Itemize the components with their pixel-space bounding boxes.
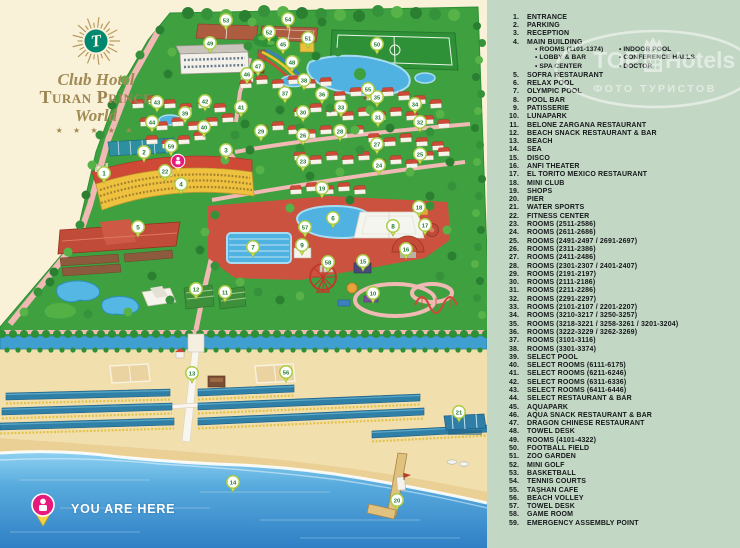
legend-item-label: WATER SPORTS (527, 204, 584, 211)
svg-text:26: 26 (300, 133, 307, 139)
svg-text:22: 22 (162, 169, 168, 175)
legend-item-number: 57. (487, 503, 519, 510)
legend-item-23: 23.ROOMS (2511-2586) (487, 220, 740, 228)
legend-item-number: 32. (487, 296, 519, 303)
legend-item-number: 14. (487, 146, 519, 153)
legend-item-47: 47.DRAGON CHINESE RESTAURANT (487, 420, 740, 428)
tree (473, 22, 481, 30)
tree (436, 110, 445, 119)
tree (477, 90, 485, 98)
tree (436, 272, 445, 281)
you-are-here-pin-icon (24, 488, 62, 528)
legend-item-label: OLYMPIC POOL (527, 88, 582, 95)
legend-item-number: 22. (487, 213, 519, 220)
svg-text:30: 30 (300, 110, 306, 116)
svg-text:52: 52 (266, 30, 272, 36)
svg-text:3: 3 (224, 147, 228, 154)
legend-item-number: 6. (487, 80, 519, 87)
villa-building (255, 75, 268, 84)
tree (443, 226, 452, 235)
legend-item-number: 19. (487, 188, 519, 195)
legend-item-number: 36. (487, 329, 519, 336)
tree (448, 182, 457, 191)
legend-item-label: PATISSERIE (527, 105, 569, 112)
svg-text:15: 15 (360, 259, 367, 265)
tree (82, 191, 91, 200)
svg-text:50: 50 (374, 42, 380, 48)
legend-item-label: SELECT POOL (527, 354, 578, 361)
svg-text:56: 56 (283, 370, 290, 376)
svg-text:1: 1 (102, 170, 106, 177)
legend-item-9: 9.PATISSERIE (487, 104, 740, 112)
tree (88, 161, 97, 170)
legend-item-11: 11.BELONE ZARGANA RESTAURANT (487, 121, 740, 129)
villa-building (383, 137, 396, 146)
villa-building (437, 147, 450, 156)
legend-item-label: EMERGENCY ASSEMBLY POINT (527, 520, 639, 527)
legend-item-label: PARKING (527, 22, 560, 29)
tree (346, 196, 355, 205)
legend-item-number: 13. (487, 138, 519, 145)
legend-sub-item: • SPA CENTER (535, 63, 619, 71)
tree (166, 296, 175, 305)
legend-item-10: 10.LUNAPARK (487, 113, 740, 121)
legend-item-label: LUNAPARK (527, 113, 567, 120)
legend-item-45: 45.AQUAPARK (487, 403, 740, 411)
tree (391, 6, 403, 18)
svg-text:35: 35 (374, 95, 381, 101)
svg-text:51: 51 (305, 36, 312, 42)
legend-item-58: 58.GAME ROOM (487, 511, 740, 519)
legend-item-label: POOL BAR (527, 97, 565, 104)
legend-item-number: 7. (487, 88, 519, 95)
legend-item-label: MAIN BUILDING (527, 39, 583, 46)
legend-item-label: ROOMS (2301-2307 / 2401-2407) (527, 263, 637, 270)
legend-item-35: 35.ROOMS (3218-3221 / 3258-3261 / 3201-3… (487, 320, 740, 328)
villa-building (341, 155, 354, 164)
legend-item-number: 28. (487, 263, 519, 270)
tree (475, 192, 483, 200)
svg-text:25: 25 (417, 152, 424, 158)
legend-item-7: 7.OLYMPIC POOL (487, 88, 740, 96)
legend-item-label: ROOMS (2491-2497 / 2691-2697) (527, 238, 637, 245)
legend-item-48: 48.TOWEL DESK (487, 428, 740, 436)
legend-item-number: 51. (487, 453, 519, 460)
legend-panel: 1.ENTRANCE2.PARKING3.RECEPTION4.MAIN BUI… (487, 0, 740, 548)
legend-item-label: PIER (527, 196, 544, 203)
svg-text:53: 53 (223, 18, 230, 24)
villa-building (221, 113, 234, 122)
tree (164, 70, 173, 79)
svg-text:33: 33 (338, 105, 345, 111)
tree (356, 146, 365, 155)
legend-item-21: 21.WATER SPORTS (487, 204, 740, 212)
villa-building (309, 103, 322, 112)
legend-item-label: DRAGON CHINESE RESTAURANT (527, 420, 645, 427)
legend-item-44: 44.SELECT RESTAURANT & BAR (487, 395, 740, 403)
legend-item-label: ROOMS (2611-2686) (527, 229, 596, 236)
legend-item-number: 34. (487, 312, 519, 319)
legend-item-40: 40.SELECT ROOMS (6111-6175) (487, 361, 740, 369)
tree (201, 8, 213, 20)
logo-club-hotel: Club Hotel (28, 71, 164, 88)
sun-logo-icon: T (54, 12, 138, 70)
svg-text:8: 8 (391, 223, 395, 230)
tree (478, 311, 486, 319)
legend-item-label: ROOMS (4101-4322) (527, 437, 596, 444)
legend-item-39: 39.SELECT POOL (487, 353, 740, 361)
tree (246, 146, 255, 155)
svg-text:17: 17 (422, 223, 428, 229)
svg-text:16: 16 (403, 247, 410, 253)
svg-text:9: 9 (300, 242, 304, 249)
svg-text:23: 23 (300, 159, 307, 165)
legend-item-label: MINI CLUB (527, 180, 565, 187)
legend-item-label: SELECT ROOMS (6211-6246) (527, 370, 626, 377)
villa-building (399, 133, 412, 142)
tree (241, 120, 250, 129)
legend-item-number: 29. (487, 271, 519, 278)
logo-turan-prince: Turan Prince (28, 88, 164, 107)
legend-item-number: 26. (487, 246, 519, 253)
legend-item-54: 54.TENNIS COURTS (487, 478, 740, 486)
legend-item-number: 58. (487, 511, 519, 518)
legend-item-52: 52.MINI GOLF (487, 461, 740, 469)
tree (168, 48, 177, 57)
legend-item-number: 9. (487, 105, 519, 112)
legend-item-28: 28.ROOMS (2301-2307 / 2401-2407) (487, 262, 740, 270)
legend-item-number: 44. (487, 395, 519, 402)
legend-item-label: MINI GOLF (527, 462, 565, 469)
legend-item-number: 47. (487, 420, 519, 427)
legend-item-label: RECEPTION (527, 30, 569, 37)
legend-item-label: ROOMS (2411-2486) (527, 254, 596, 261)
legend-item-label: AQUAPARK (527, 404, 568, 411)
legend-item-label: ZOO GARDEN (527, 453, 576, 460)
villa-building (325, 151, 338, 160)
tree (76, 221, 85, 230)
legend-item-number: 17. (487, 171, 519, 178)
legend-item-number: 10. (487, 113, 519, 120)
tree (477, 226, 485, 234)
tree (254, 288, 263, 297)
legend-item-label: GAME ROOM (527, 511, 573, 518)
legend-item-number: 55. (487, 487, 519, 494)
tree (410, 7, 422, 19)
villa-building (397, 91, 410, 100)
svg-text:39: 39 (182, 111, 189, 117)
tree (334, 9, 346, 21)
legend-item-33: 33.ROOMS (2101-2107 / 2201-2207) (487, 303, 740, 311)
legend-item-31: 31.ROOMS (2211-2286) (487, 287, 740, 295)
legend-item-number: 21. (487, 204, 519, 211)
legend-item-number: 42. (487, 379, 519, 386)
legend-item-number: 54. (487, 478, 519, 485)
svg-text:38: 38 (301, 78, 308, 84)
tree (429, 8, 441, 20)
legend-item-number: 49. (487, 437, 519, 444)
svg-text:58: 58 (325, 260, 332, 266)
legend-item-label: SHOPS (527, 188, 552, 195)
svg-text:24: 24 (376, 163, 383, 169)
legend-item-label: ROOMS (2101-2107 / 2201-2207) (527, 304, 637, 311)
legend-sub-item: • CONFERENCE HALLS (619, 54, 740, 62)
legend-item-8: 8.POOL BAR (487, 96, 740, 104)
legend-item-24: 24.ROOMS (2611-2686) (487, 229, 740, 237)
villa-building (177, 135, 190, 144)
tree (475, 56, 483, 64)
tree (478, 175, 486, 183)
legend-item-number: 38. (487, 346, 519, 353)
svg-text:4: 4 (179, 181, 183, 188)
villa-building (415, 137, 428, 146)
legend-item-label: ROOMS (3301-3374) (527, 346, 596, 353)
svg-text:47: 47 (255, 64, 261, 70)
svg-text:45: 45 (280, 42, 287, 48)
legend-item-19: 19.SHOPS (487, 187, 740, 195)
svg-text:55: 55 (365, 87, 372, 93)
villa-building (349, 87, 362, 96)
legend-item-3: 3.RECEPTION (487, 30, 740, 38)
legend-item-number: 23. (487, 221, 519, 228)
legend-item-46: 46.AQUA SNACK RESTAURANT & BAR (487, 411, 740, 419)
svg-text:20: 20 (394, 498, 400, 504)
tree (148, 272, 157, 281)
legend-item-label: SELECT ROOMS (6311-6336) (527, 379, 626, 386)
tree (211, 211, 220, 220)
legend-item-53: 53.BASKETBALL (487, 469, 740, 477)
svg-text:29: 29 (258, 129, 265, 135)
tree (351, 126, 360, 135)
legend-item-number: 40. (487, 362, 519, 369)
legend-item-label: ROOMS (3210-3217 / 3250-3257) (527, 312, 637, 319)
legend-item-number: 33. (487, 304, 519, 311)
legend-item-label: FOOTBALL FIELD (527, 445, 589, 452)
legend-item-27: 27.ROOMS (2411-2486) (487, 254, 740, 262)
legend-item-number: 12. (487, 130, 519, 137)
svg-text:37: 37 (282, 91, 288, 97)
tree (276, 106, 285, 115)
tree (474, 107, 482, 115)
legend-item-55: 55.TAŞHAN CAFE (487, 486, 740, 494)
legend-list: 1.ENTRANCE2.PARKING3.RECEPTION4.MAIN BUI… (487, 13, 740, 527)
tree (446, 158, 455, 167)
legend-item-label: TAŞHAN CAFE (527, 487, 578, 494)
svg-text:5: 5 (136, 224, 140, 231)
legend-item-label: SELECT RESTAURANT & BAR (527, 395, 632, 402)
legend-item-number: 39. (487, 354, 519, 361)
villa-building (389, 155, 402, 164)
tree (426, 128, 435, 137)
tree (372, 5, 384, 17)
tree (426, 202, 435, 211)
tree (248, 18, 257, 27)
svg-text:59: 59 (168, 144, 175, 150)
tree (20, 308, 29, 317)
tree (471, 124, 479, 132)
legend-item-number: 52. (487, 462, 519, 469)
villa-building (353, 185, 366, 194)
logo-world: World (28, 107, 164, 125)
legend-item-number: 56. (487, 495, 519, 502)
legend-item-1: 1.ENTRANCE (487, 13, 740, 21)
legend-sub-item: • ROOMS (1101-1374) (535, 46, 619, 54)
villa-building (289, 185, 302, 194)
legend-item-label: BEACH (527, 138, 553, 145)
tree (50, 268, 59, 277)
legend-item-number: 3. (487, 30, 519, 37)
svg-text:57: 57 (302, 225, 308, 231)
beach-kiosk (208, 376, 225, 387)
svg-text:18: 18 (416, 205, 423, 211)
legend-item-13: 13.BEACH (487, 137, 740, 145)
tree (46, 278, 55, 287)
legend-item-59: 59.EMERGENCY ASSEMBLY POINT (487, 519, 740, 527)
legend-item-20: 20.PIER (487, 196, 740, 204)
legend-item-label: SELECT ROOMS (6411-6446) (527, 387, 626, 394)
villa-building (333, 91, 346, 100)
svg-text:40: 40 (201, 125, 207, 131)
villa-building (429, 99, 442, 108)
legend-item-label: BELONE ZARGANA RESTAURANT (527, 122, 646, 129)
legend-item-number: 20. (487, 196, 519, 203)
legend-item-number: 43. (487, 387, 519, 394)
legend-item-57: 57.TOWEL DESK (487, 503, 740, 511)
legend-item-label: ROOMS (3101-3116) (527, 337, 596, 344)
logo-stars: ★ ★ ★ ★ ★ (28, 125, 164, 137)
legend-item-number: 25. (487, 238, 519, 245)
legend-sub-item: • LOBBY & BAR (535, 54, 619, 62)
legend-item-label: ENTRANCE (527, 14, 567, 21)
svg-text:32: 32 (417, 120, 423, 126)
legend-item-number: 59. (487, 520, 519, 527)
svg-text:19: 19 (319, 186, 326, 192)
map-area: 1234567891011121314151617181920212223242… (0, 0, 487, 548)
legend-item-label: BASKETBALL (527, 470, 576, 477)
tree (353, 10, 365, 22)
legend-item-29: 29.ROOMS (2191-2197) (487, 270, 740, 278)
legend-item-label: DISCO (527, 155, 550, 162)
tree (231, 131, 240, 140)
legend-item-number: 46. (487, 412, 519, 419)
svg-text:48: 48 (289, 60, 296, 66)
legend-item-number: 11. (487, 122, 519, 129)
legend-item-16: 16.ANFI THEATER (487, 162, 740, 170)
svg-text:21: 21 (456, 410, 463, 416)
svg-text:41: 41 (238, 105, 245, 111)
tree (478, 39, 486, 47)
legend-item-number: 53. (487, 470, 519, 477)
legend-item-number: 45. (487, 404, 519, 411)
svg-text:36: 36 (319, 92, 326, 98)
tree (306, 172, 315, 181)
legend-item-25: 25.ROOMS (2491-2497 / 2691-2697) (487, 237, 740, 245)
legend-item-number: 31. (487, 287, 519, 294)
tree (448, 9, 460, 21)
legend-item-number: 1. (487, 14, 519, 21)
villa-building (319, 125, 332, 134)
tree (476, 141, 484, 149)
legend-item-label: ROOMS (3218-3221 / 3258-3261 / 3201-3204… (527, 321, 678, 328)
tree (84, 310, 93, 319)
svg-text:31: 31 (375, 115, 382, 121)
legend-item-label: BEACH SNACK RESTAURANT & BAR (527, 130, 657, 137)
legend-item-label: ROOMS (2291-2297) (527, 296, 596, 303)
legend-item-label: TOWEL DESK (527, 428, 575, 435)
you-are-here: YOU ARE HERE (24, 488, 175, 528)
svg-text:27: 27 (374, 142, 380, 148)
villa-building (163, 99, 176, 108)
tree (276, 296, 285, 305)
villa-building (389, 107, 402, 116)
legend-item-label: ROOMS (2311-2386) (527, 246, 596, 253)
foot-bridge (188, 334, 204, 352)
tree (426, 192, 435, 201)
legend-item-label: TENNIS COURTS (527, 478, 586, 485)
legend-sub-item: • DOCTOR (619, 63, 740, 71)
tree (472, 209, 480, 217)
svg-text:11: 11 (222, 290, 229, 296)
tree (318, 18, 327, 27)
legend-item-number: 15. (487, 155, 519, 162)
legend-item-50: 50.FOOTBALL FIELD (487, 444, 740, 452)
svg-text:28: 28 (337, 129, 344, 135)
tree (296, 292, 305, 301)
tree (244, 42, 253, 51)
legend-item-34: 34.ROOMS (3210-3217 / 3250-3257) (487, 312, 740, 320)
tree (334, 48, 343, 57)
tree (296, 7, 308, 19)
legend-item-label: SELECT ROOMS (6111-6175) (527, 362, 626, 369)
tree (474, 243, 482, 251)
legend-item-number: 41. (487, 370, 519, 377)
legend-item-number: 8. (487, 97, 519, 104)
legend-item-label: ROOMS (3222-3229 / 3262-3269) (527, 329, 637, 336)
legend-item-label: SEA (527, 146, 542, 153)
legend-item-2: 2.PARKING (487, 21, 740, 29)
svg-text:42: 42 (202, 99, 208, 105)
legend-item-number: 27. (487, 254, 519, 261)
svg-text:34: 34 (412, 102, 419, 108)
tree (473, 158, 481, 166)
tree (472, 73, 480, 81)
legend-item-label: SOFRA RESTAURANT (527, 72, 603, 79)
legend-item-42: 42.SELECT ROOMS (6311-6336) (487, 378, 740, 386)
tree (336, 168, 345, 177)
legend-item-number: 4. (487, 39, 519, 46)
legend-item-number: 30. (487, 279, 519, 286)
legend-item-56: 56.BEACH VOLLEY (487, 494, 740, 502)
tree (258, 5, 270, 17)
villa-building (309, 155, 322, 164)
legend-item-41: 41.SELECT ROOMS (6211-6246) (487, 370, 740, 378)
legend-item-43: 43.SELECT ROOMS (6411-6446) (487, 386, 740, 394)
tree (312, 52, 321, 61)
legend-item-12: 12.BEACH SNACK RESTAURANT & BAR (487, 129, 740, 137)
tree (201, 228, 210, 237)
legend-item-number: 48. (487, 428, 519, 435)
svg-text:54: 54 (285, 17, 292, 23)
svg-text:12: 12 (193, 287, 199, 293)
legend-item-36: 36.ROOMS (3222-3229 / 3262-3269) (487, 328, 740, 336)
villa-building (337, 182, 350, 191)
tree (64, 248, 73, 257)
legend-item-label: TOWEL DESK (527, 503, 575, 510)
legend-item-30: 30.ROOMS (2111-2186) (487, 279, 740, 287)
legend-item-6: 6.RELAX POOL (487, 79, 740, 87)
legend-item-label: ANFI THEATER (527, 163, 580, 170)
legend-item-18: 18.MINI CLUB (487, 179, 740, 187)
